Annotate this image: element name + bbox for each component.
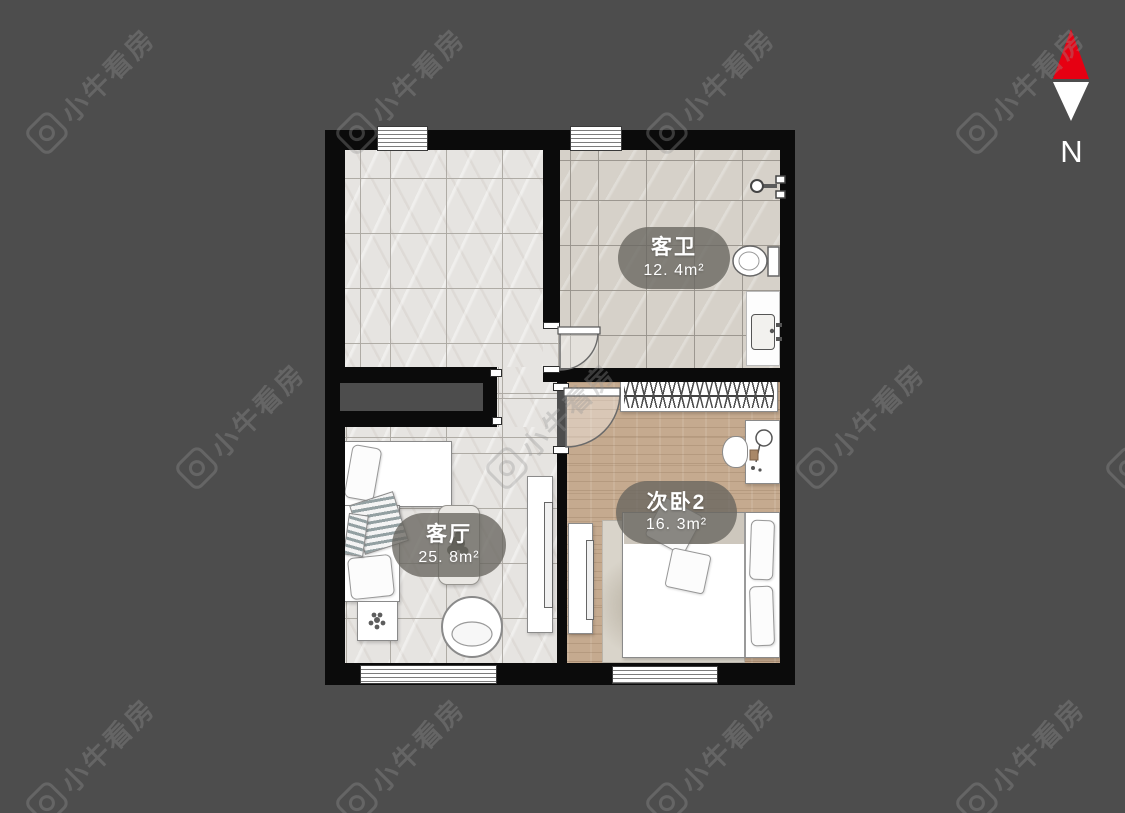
room-area: 16. 3m² xyxy=(646,515,707,535)
fixtures-overlay xyxy=(0,0,1125,813)
shower-faucet xyxy=(751,176,785,198)
flower-icon xyxy=(369,613,386,630)
room-area: 25. 8m² xyxy=(418,548,479,568)
sink-faucet xyxy=(770,323,782,341)
north-label: N xyxy=(1040,134,1104,170)
floor-plan-canvas: 客卫 12. 4m² 客厅 25. 8m² 次卧2 16. 3m² N 小牛看房… xyxy=(0,0,1125,813)
room-name: 次卧2 xyxy=(647,490,707,515)
compass: N xyxy=(1040,25,1104,167)
north-arrow-icon xyxy=(1040,25,1104,125)
room-name: 客卫 xyxy=(651,235,697,260)
bathroom-door xyxy=(558,327,600,370)
room-name: 客厅 xyxy=(426,522,472,547)
room-label-guest-bathroom: 客卫 12. 4m² xyxy=(618,227,730,289)
room-label-bedroom-2: 次卧2 16. 3m² xyxy=(616,481,737,544)
room-area: 12. 4m² xyxy=(643,261,704,281)
toilet xyxy=(733,246,779,276)
desk-lamp-icon xyxy=(750,430,772,472)
round-chair xyxy=(442,597,502,657)
bedroom-door xyxy=(564,388,620,447)
room-label-living-room: 客厅 25. 8m² xyxy=(392,513,506,577)
